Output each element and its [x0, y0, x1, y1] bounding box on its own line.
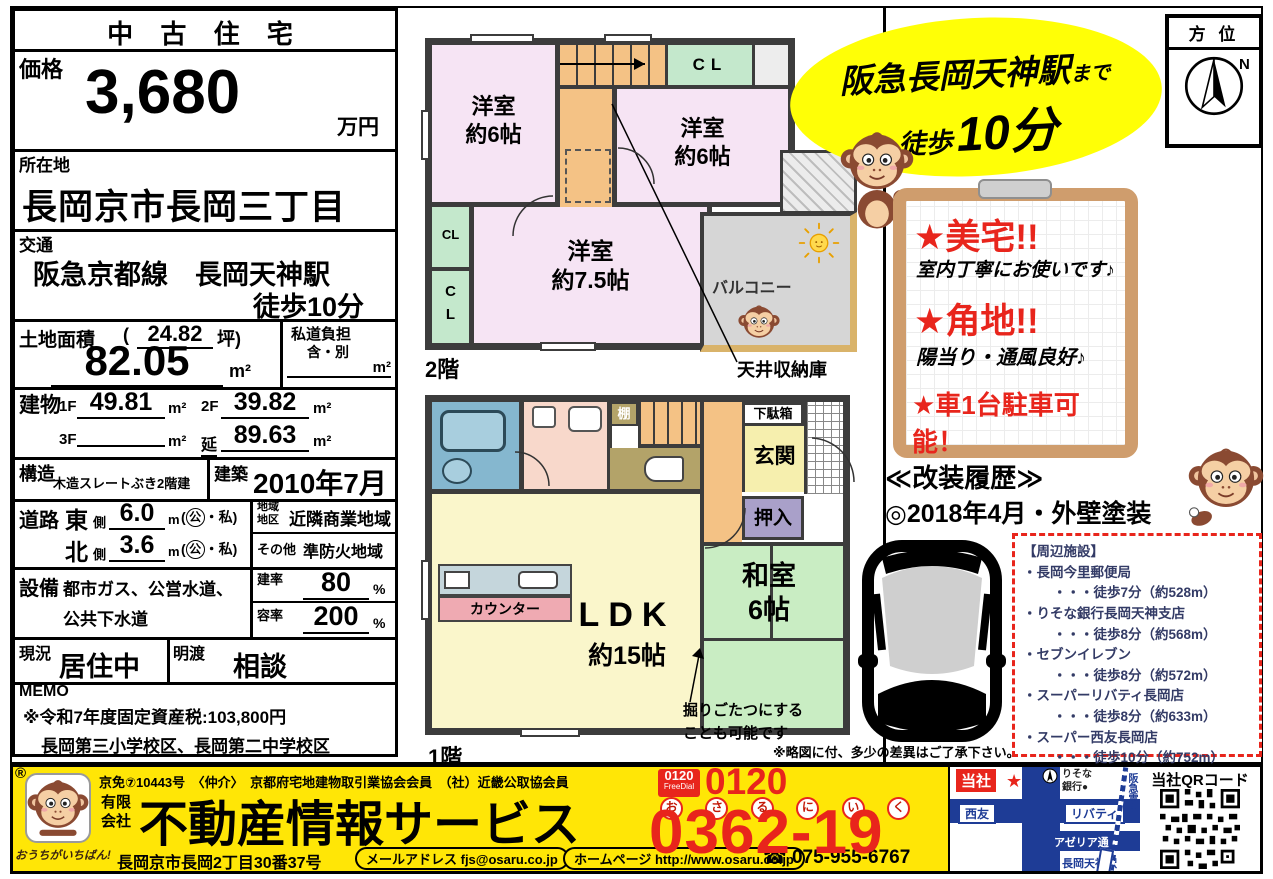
listing-type: 中 古 住 宅: [15, 14, 395, 51]
price-label: 価格: [19, 52, 63, 84]
closet-2f-left-lower: C L: [432, 271, 474, 343]
closet-2f-left-lower-label: C L: [432, 281, 469, 326]
company-prefix: 有限 会社: [101, 794, 131, 832]
appeal-title-1: ★美宅!!: [914, 209, 1039, 260]
ldk-label: LDK 約15帖: [562, 594, 692, 672]
map-road-azeria: アゼリア通: [1036, 831, 1140, 851]
zone-sub-divider: [253, 532, 395, 534]
price-value: 3,680: [85, 57, 240, 128]
flyer-page: 中 古 住 宅 価格 3,680 万円 所在地 長岡京市長岡三丁目 交通 阪急京…: [0, 0, 1273, 879]
facility-name: ・りそな銀行長岡天神支店: [1023, 604, 1251, 625]
walk-minutes: 10分: [955, 104, 1059, 162]
equipment-label: 設備: [19, 572, 59, 601]
counter-label: カウンター: [440, 601, 570, 619]
price-unit: 万円: [337, 111, 379, 141]
counter-1f: カウンター: [438, 596, 572, 622]
building-total-value: 89.63: [221, 421, 309, 452]
handover-label: 明渡: [173, 640, 205, 664]
phone-main-number: 0362-19: [649, 797, 884, 868]
closet-2f-top: CL: [665, 45, 752, 89]
kenpei-label: 建率: [257, 569, 283, 588]
status-row: 現況 居住中 明渡 相談: [15, 637, 395, 685]
zone-label-line2: 地区: [257, 514, 279, 527]
building-total-label: 延: [201, 431, 217, 457]
structure-value: 木造スレートぶき2階建: [53, 473, 190, 492]
building-total-unit: m²: [313, 433, 331, 450]
ldk-1f: カウンター LDK 約15帖: [432, 494, 700, 728]
facility-distance: ・・・徒歩8分（約572m）: [1023, 666, 1251, 687]
other-label: その他: [257, 539, 296, 558]
road1-paren-open: (: [181, 509, 186, 525]
memo-row: MEMO ※令和7年度固定資産税:103,800円 長岡第三小学校区、長岡第二中…: [15, 682, 395, 752]
window-mark: [470, 34, 534, 43]
company-logo: [25, 773, 91, 843]
road2-public-circled: 公: [186, 540, 205, 559]
room-2f-west-size: 約6帖: [432, 121, 555, 149]
building-2f-label: 2F: [201, 398, 219, 415]
road1-direction: 東: [65, 501, 88, 535]
road1-side: 側: [93, 512, 106, 531]
washitsu-type: 和室: [704, 560, 834, 594]
floorplan-1f: 棚 下駄箱 玄関 押入 カウンター LDK 約15帖: [425, 395, 850, 735]
status-label: 現況: [19, 640, 51, 664]
room-2f-east-label: 洋室 約6帖: [617, 115, 788, 170]
road1-paren-rest: ・私): [205, 509, 238, 525]
kotatsu-note: 掘りごたつにする ことも可能です: [683, 700, 803, 745]
appeal-title-2: ★角地!!: [914, 293, 1039, 344]
renovation-title: ≪改装履歴≫: [885, 458, 1043, 495]
email-pill: メールアドレス fjs@osaru.co.jp: [355, 847, 569, 870]
property-info-table: 中 古 住 宅 価格 3,680 万円 所在地 長岡京市長岡三丁目 交通 阪急京…: [12, 8, 398, 757]
location-row: 所在地 長岡京市長岡三丁目: [15, 149, 395, 232]
land-cell-divider: [280, 319, 283, 387]
company-slogan: おうちがいちばん!: [15, 847, 111, 863]
freedial-logo: 0120 FreeDial: [658, 769, 700, 797]
appeal-board: ★美宅!! 室内丁寧にお使いです♪ ★角地!! 陽当り・通風良好♪ ★車1台駐車…: [893, 188, 1138, 458]
freedial-logo-text: FreeDial: [658, 783, 700, 792]
road-label: 道路: [19, 504, 59, 533]
structure-row: 構造 木造スレートぶき2階建 建築 2010年7月: [15, 457, 395, 502]
closet-2f-left-upper: CL: [432, 207, 474, 271]
handover-value: 相談: [233, 645, 287, 684]
road1-width: 6.0: [109, 499, 165, 530]
yoseki-percent: %: [373, 615, 385, 631]
building-1f-label: 1F: [59, 398, 77, 415]
facility-name: ・セブンイレブン: [1023, 645, 1251, 666]
company-name: 不動産情報サービス: [139, 785, 580, 856]
car-icon: [858, 538, 1006, 744]
memo-line2: 長岡第三小学校区、長岡第二中学校区: [41, 732, 330, 757]
zone-label: 地域 地区: [257, 501, 279, 527]
equipment-row: 設備 都市ガス、公営水道、 公共下水道 建率 80 % 容率 200 %: [15, 567, 395, 640]
window-mark: [421, 560, 430, 620]
kitchen-stove: [444, 571, 470, 589]
map-seiyu: 西友: [958, 803, 996, 824]
kitchen-sink: [518, 571, 558, 589]
compass-label: 方 位: [1169, 18, 1259, 50]
facility-name: ・スーパー西友長岡店: [1023, 728, 1251, 749]
renovation-item: ◎2018年4月・外壁塗装: [885, 494, 1151, 530]
closet-2f-top-label: CL: [668, 54, 752, 75]
facility-name: ・スーパーリバティ長岡店: [1023, 686, 1251, 707]
facility-distance: ・・・徒歩8分（約633m）: [1023, 707, 1251, 728]
appeal-sub-2: 陽当り・通風良好♪: [916, 341, 1086, 370]
transport-row: 交通 阪急京都線 長岡天神駅 徒歩10分: [15, 229, 395, 322]
road2-kind: (公・私): [181, 539, 237, 559]
mascot-monkey-pointing: [1188, 442, 1264, 534]
footer-band: ® おうちがいちばん! 京免⑦10443号 〈仲介〉 京都府宅地建物取引業協会会…: [10, 764, 1263, 874]
map-bank-line1: りそな: [1062, 769, 1092, 782]
location-label: 所在地: [19, 151, 70, 176]
building-2f-unit: m²: [313, 400, 331, 417]
balcony-monkey-icon: [738, 302, 780, 344]
ceiling-storage-note: 天井収納庫: [737, 356, 827, 382]
washing-machine: [532, 406, 556, 428]
road2-paren-open: (: [181, 541, 186, 557]
road2-paren-rest: ・私): [205, 541, 238, 557]
qr-code: [1158, 789, 1242, 869]
window-mark: [520, 728, 580, 737]
kenpei-value: 80: [303, 567, 369, 600]
plan-disclaimer: ※略図に付、多少の差異はご了承下さい。: [773, 742, 1020, 761]
map-north-icon: [1042, 768, 1058, 784]
closet-2f-dashed: [565, 149, 611, 203]
building-1f-value: 49.81: [77, 388, 165, 419]
building-3f-blank: [77, 421, 165, 447]
oshiire-label: 押入: [745, 507, 801, 531]
logo-monkey-icon: [27, 775, 89, 841]
stairs-2f: [560, 45, 665, 89]
closet-oshiire-1f: 押入: [742, 496, 804, 540]
window-mark: [421, 110, 430, 160]
bath-door-area: [442, 458, 472, 484]
equipment-line1: 都市ガス、公営水道、: [63, 575, 233, 600]
map-company-tag: 当社: [956, 769, 996, 792]
ldk-type: LDK: [562, 594, 692, 637]
room-2f-west-type: 洋室: [432, 93, 555, 121]
room-2f-south-label: 洋室 約7.5帖: [474, 237, 707, 295]
balcony-2f: バルコニー: [700, 212, 857, 352]
memo-label: MEMO: [19, 683, 69, 701]
furigana-char: く: [887, 797, 910, 820]
washitsu-label: 和室 6帖: [704, 560, 834, 628]
map-bank-line2: 銀行●: [1062, 782, 1092, 795]
road1-unit: m: [168, 512, 180, 527]
closet-2f-c: C: [432, 281, 469, 304]
zone-label-line1: 地域: [257, 501, 279, 514]
company-prefix-line1: 有限: [101, 794, 131, 813]
built-value: 2010年7月: [253, 462, 387, 502]
land-value: 82.05: [51, 337, 223, 387]
private-road-unit: m²: [287, 359, 391, 378]
window-mark: [604, 34, 652, 43]
building-3f-label: 3F: [59, 431, 77, 448]
shoe-cabinet-1f: 下駄箱: [742, 402, 804, 426]
room-2f-east-type: 洋室: [617, 115, 788, 143]
qr-section: 当社QRコード: [1140, 767, 1260, 871]
room-2f-south-type: 洋室: [474, 237, 707, 266]
room-2f-west-label: 洋室 約6帖: [432, 93, 555, 148]
board-clip: [978, 179, 1052, 199]
facility-distance: ・・・徒歩7分（約528m）: [1023, 583, 1251, 604]
building-1f-unit: m²: [168, 400, 186, 417]
memo-line1: ※令和7年度固定資産税:103,800円: [23, 703, 286, 728]
company-address: 長岡京市長岡2丁目30番37号: [117, 849, 322, 873]
road1-public-circled: 公: [186, 508, 205, 527]
bathroom-1f: [432, 402, 524, 494]
yoseki-value: 200: [303, 601, 369, 634]
hallway-1f: [700, 402, 742, 542]
room-2f-east: 洋室 約6帖: [617, 89, 788, 207]
land-unit: m²: [229, 361, 251, 382]
facility-distance: ・・・徒歩8分（約568m）: [1023, 625, 1251, 646]
appeal-sub-1: 室内丁寧にお使いです♪: [916, 255, 1115, 282]
shelf-1f: 棚: [610, 402, 638, 426]
shoe-cabinet-label: 下駄箱: [745, 406, 801, 422]
stairs-1f: [638, 402, 700, 448]
room-2f-south: 洋室 約7.5帖: [474, 207, 712, 343]
floor-2f-label: 2階: [425, 352, 459, 384]
road2-direction: 北: [65, 533, 88, 567]
balcony-label: バルコニー: [712, 274, 792, 298]
table-header-row: 中 古 住 宅: [15, 11, 395, 52]
price-row: 価格 3,680 万円: [15, 49, 395, 152]
map-hankyu-label: 阪急電車: [1124, 773, 1139, 813]
land-row: 土地面積 ( 24.82 坪) 82.05 m² 私道負担 含・別 m²: [15, 319, 395, 390]
map-company-star: ★: [1006, 771, 1022, 792]
storage-2f-topright: [752, 45, 788, 89]
building-row: 建物 1F 49.81 m² 2F 39.82 m² 3F m² 延 89.63…: [15, 387, 395, 460]
facilities-title: 【周辺施設】: [1023, 542, 1251, 563]
room-2f-west: 洋室 約6帖: [432, 45, 560, 207]
yoseki-label: 容率: [257, 605, 283, 624]
status-value: 居住中: [59, 645, 140, 684]
facility-name: ・長岡今里郵便局: [1023, 563, 1251, 584]
shelf-label: 棚: [612, 406, 636, 422]
room-2f-east-size: 約6帖: [617, 143, 788, 171]
toilet-bowl: [644, 456, 684, 482]
other-value: 準防火地域: [303, 538, 383, 562]
compass-north: N: [1239, 56, 1250, 73]
location-value: 長岡京市長岡三丁目: [22, 179, 346, 230]
facilities-box: 【周辺施設】 ・長岡今里郵便局 ・・・徒歩7分（約528m） ・りそな銀行長岡天…: [1012, 533, 1262, 757]
equipment-line2: 公共下水道: [63, 605, 148, 630]
building-2f-value: 39.82: [221, 388, 309, 419]
zone-value: 近隣商業地域: [289, 505, 391, 530]
compass-icon: [1182, 54, 1246, 118]
window-mark: [540, 342, 596, 351]
appeal-title-3: ★車1台駐車可能！: [912, 385, 1125, 459]
structure-label: 構造: [19, 460, 55, 486]
kotatsu-note-line1: 掘りごたつにする: [683, 700, 803, 723]
kitchen-unit: [438, 564, 572, 596]
built-label: 建築: [214, 460, 248, 485]
washstand: [568, 406, 602, 432]
private-road-label: 私道負担: [291, 323, 351, 344]
closet-2f-left-upper-label: CL: [432, 227, 469, 243]
qr-label: 当社QRコード: [1140, 769, 1260, 790]
entrance-1f: 玄関: [742, 426, 804, 492]
room-2f-south-size: 約7.5帖: [474, 266, 707, 295]
washitsu-size: 6帖: [704, 594, 834, 628]
status-cell-divider: [167, 637, 170, 682]
toilet-1f: [610, 448, 700, 494]
road1-kind: (公・私): [181, 507, 237, 527]
road2-side: 側: [93, 544, 106, 563]
closet-2f-l: L: [432, 304, 469, 327]
building-3f-unit: m²: [168, 433, 186, 450]
washroom-1f: [524, 402, 612, 494]
road2-unit: m: [168, 544, 180, 559]
structure-cell-divider: [207, 457, 210, 499]
porch-1f: [804, 402, 843, 494]
company-prefix-line2: 会社: [101, 813, 131, 832]
access-map: アゼリア通 当社 ★ りそな 銀行● 西友 リバティ 長岡天神駅 阪急電車: [948, 767, 1140, 871]
road-row: 道路 東 側 6.0 m (公・私) 北 側 3.6 m (公・私) 地域 地区…: [15, 499, 395, 570]
kenpei-percent: %: [373, 581, 385, 597]
compass-box: 方 位 N: [1165, 14, 1263, 148]
station-suffix: まで: [1070, 62, 1111, 86]
freedial-logo-number: 0120: [658, 769, 700, 783]
ldk-size: 約15帖: [562, 641, 692, 672]
tatami-line-h: [704, 638, 843, 641]
building-label: 建物: [19, 389, 61, 419]
sun-icon: [796, 220, 842, 266]
bathtub: [440, 410, 506, 452]
map-bank-label: りそな 銀行●: [1062, 769, 1092, 794]
road2-width: 3.6: [109, 531, 165, 562]
registered-mark: ®: [15, 765, 26, 782]
entrance-label: 玄関: [745, 444, 804, 470]
